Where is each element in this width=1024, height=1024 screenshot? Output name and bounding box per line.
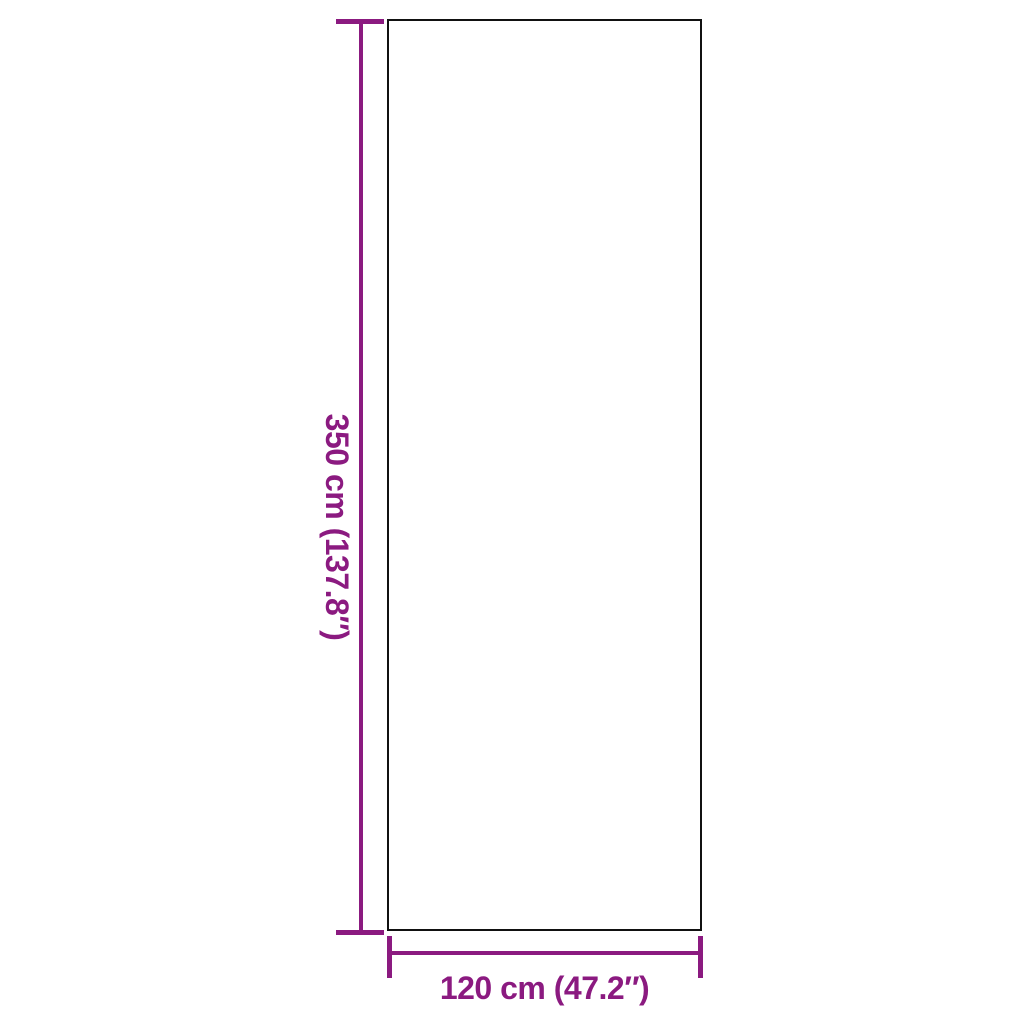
- height-dimension-top-cap: [336, 19, 384, 24]
- height-dimension-line: [359, 21, 363, 932]
- height-dimension-label: 350 cm (137.8″): [321, 414, 353, 641]
- height-dimension-bottom-cap: [336, 930, 384, 935]
- dimension-diagram: 350 cm (137.8″) 120 cm (47.2″): [0, 0, 1024, 1024]
- product-outline-rectangle: [387, 19, 702, 931]
- width-dimension-label: 120 cm (47.2″): [387, 972, 702, 1004]
- width-dimension-line: [389, 951, 701, 955]
